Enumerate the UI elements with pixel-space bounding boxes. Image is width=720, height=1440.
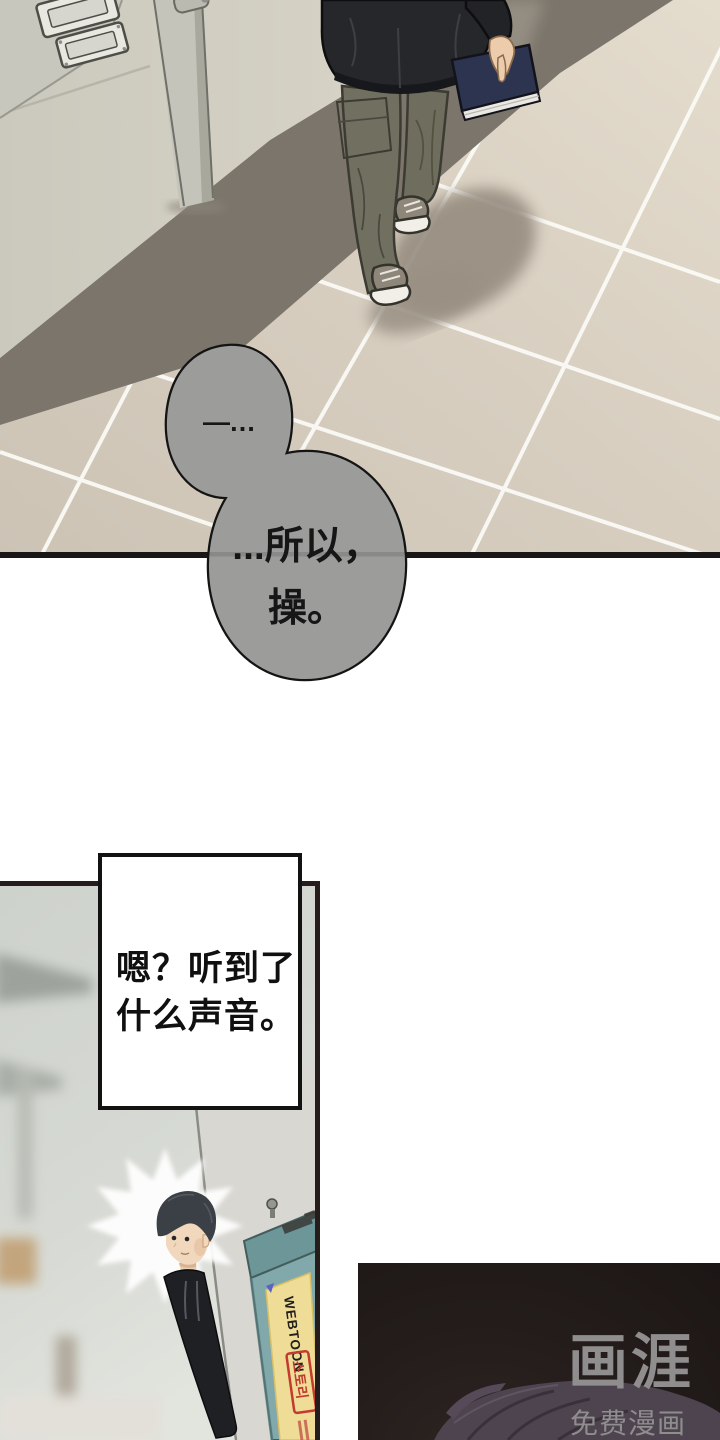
- caption-line2: 什么声音。: [116, 993, 298, 1041]
- panel-border-right: [315, 881, 320, 1440]
- caption-box: 嗯？听到了 什么声音。: [98, 853, 302, 1110]
- caption-line1: 嗯？听到了: [116, 945, 298, 993]
- watermark-logo: 画涯: [568, 1333, 694, 1393]
- watermark-tagline: 免费漫画: [568, 1402, 694, 1440]
- sneaker-front: [371, 265, 410, 305]
- bubble-large-text: ...所以， 操。: [209, 466, 405, 690]
- sneaker-back: [394, 197, 430, 234]
- board-knob: [267, 1199, 277, 1209]
- webtoon-page: —… ...所以， 操。: [0, 0, 720, 1440]
- panel-dark: 画涯 免费漫画: [358, 1263, 720, 1440]
- bubble-large-line1: ...所以，: [232, 516, 382, 578]
- watermark: 画涯 免费漫画: [568, 1333, 694, 1440]
- eye-right: [185, 1237, 190, 1242]
- bubble-large-line2: 操。: [268, 578, 346, 640]
- eye-left: [172, 1236, 177, 1241]
